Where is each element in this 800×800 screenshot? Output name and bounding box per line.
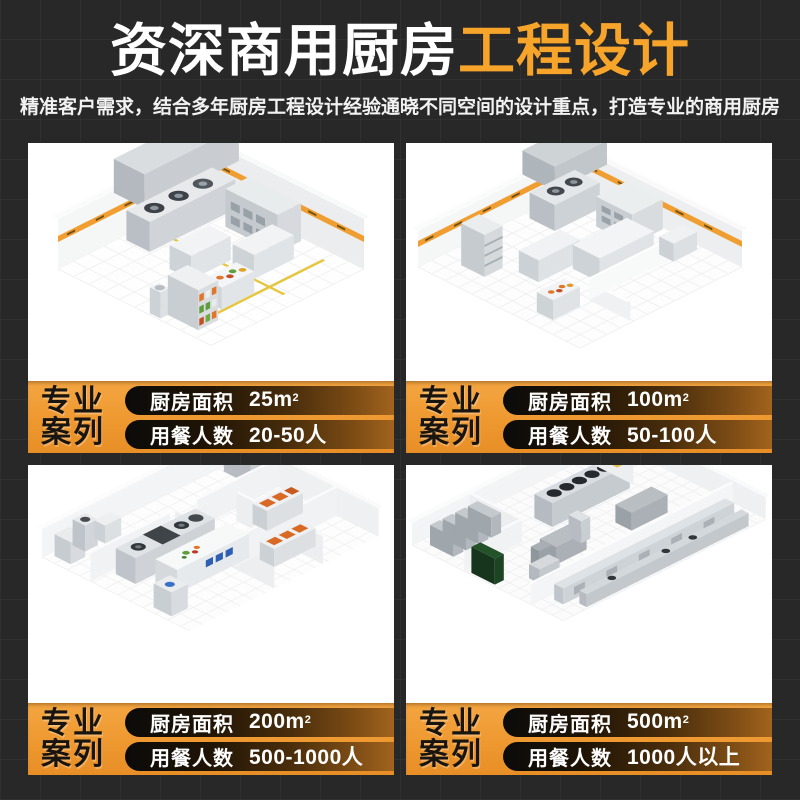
professional-case-badge: 专业 案列 (406, 386, 503, 448)
professional-case-badge: 专业 案列 (28, 708, 125, 770)
kitchen-render-500sqm (406, 465, 772, 703)
case-info-bar: 专业 案列 厨房面积 25m2 用餐人数 20-50人 (28, 381, 394, 453)
case-card-100sqm: 专业 案列 厨房面积 100m2 用餐人数 50-100人 (406, 143, 772, 453)
kitchen-isometric-illustration-500sqm (406, 465, 772, 703)
kitchen-area-sup: 2 (305, 714, 311, 726)
diners-count-pill: 用餐人数 1000人以上 (503, 742, 772, 771)
case-card-25sqm: 专业 案列 厨房面积 25m2 用餐人数 20-50人 (28, 143, 394, 453)
badge-line1: 专业 (41, 708, 125, 739)
kitchen-render-25sqm (28, 143, 394, 381)
kitchen-isometric-illustration-100sqm (406, 143, 772, 381)
kitchen-area-value: 500m (627, 710, 683, 734)
professional-case-badge: 专业 案列 (28, 386, 125, 448)
diners-count-pill: 用餐人数 50-100人 (503, 420, 772, 449)
diners-count-value: 20-50人 (249, 419, 327, 449)
badge-line1: 专业 (419, 708, 503, 739)
diners-count-pill: 用餐人数 20-50人 (125, 420, 394, 449)
case-card-200sqm: 专业 案列 厨房面积 200m2 用餐人数 500-1000人 (28, 465, 394, 775)
kitchen-area-pill: 厨房面积 100m2 (503, 386, 772, 415)
spec-pills: 厨房面积 25m2 用餐人数 20-50人 (125, 383, 394, 451)
kitchen-area-label: 厨房面积 (528, 386, 612, 415)
kitchen-area-value: 25m (249, 388, 293, 412)
kitchen-area-value: 100m (627, 388, 683, 412)
kitchen-isometric-illustration-25sqm (28, 143, 394, 381)
kitchen-area-label: 厨房面积 (528, 708, 612, 737)
kitchen-area-pill: 厨房面积 25m2 (125, 386, 394, 415)
badge-line2: 案列 (41, 739, 125, 770)
diners-count-label: 用餐人数 (150, 742, 234, 771)
badge-line2: 案列 (419, 739, 503, 770)
diners-count-label: 用餐人数 (528, 420, 612, 449)
case-grid: 专业 案列 厨房面积 25m2 用餐人数 20-50人 专业 案列 (28, 143, 772, 775)
kitchen-area-pill: 厨房面积 500m2 (503, 708, 772, 737)
kitchen-area-sup: 2 (293, 392, 299, 404)
diners-count-label: 用餐人数 (528, 742, 612, 771)
header: 资深商用厨房工程设计 精准客户需求，结合多年厨房工程设计经验通晓不同空间的设计重… (0, 0, 800, 143)
page-subtitle: 精准客户需求，结合多年厨房工程设计经验通晓不同空间的设计重点，打造专业的商用厨房 (0, 92, 800, 119)
kitchen-render-200sqm (28, 465, 394, 703)
diners-count-label: 用餐人数 (150, 420, 234, 449)
diners-count-value: 500-1000人 (249, 741, 363, 771)
kitchen-isometric-illustration-200sqm (28, 465, 394, 703)
spec-pills: 厨房面积 200m2 用餐人数 500-1000人 (125, 705, 394, 773)
case-card-500sqm: 专业 案列 厨房面积 500m2 用餐人数 1000人以上 (406, 465, 772, 775)
spec-pills: 厨房面积 100m2 用餐人数 50-100人 (503, 383, 772, 451)
kitchen-area-sup: 2 (683, 392, 689, 404)
badge-line2: 案列 (419, 417, 503, 448)
kitchen-area-label: 厨房面积 (150, 708, 234, 737)
badge-line1: 专业 (41, 386, 125, 417)
badge-line2: 案列 (41, 417, 125, 448)
case-info-bar: 专业 案列 厨房面积 500m2 用餐人数 1000人以上 (406, 703, 772, 775)
kitchen-area-value: 200m (249, 710, 305, 734)
kitchen-render-100sqm (406, 143, 772, 381)
diners-count-value: 1000人以上 (627, 741, 740, 771)
case-info-bar: 专业 案列 厨房面积 200m2 用餐人数 500-1000人 (28, 703, 394, 775)
kitchen-area-pill: 厨房面积 200m2 (125, 708, 394, 737)
diners-count-value: 50-100人 (627, 419, 717, 449)
badge-line1: 专业 (419, 386, 503, 417)
kitchen-area-label: 厨房面积 (150, 386, 234, 415)
page-title: 资深商用厨房工程设计 (0, 22, 800, 82)
spec-pills: 厨房面积 500m2 用餐人数 1000人以上 (503, 705, 772, 773)
professional-case-badge: 专业 案列 (406, 708, 503, 770)
title-orange-part: 工程设计 (458, 19, 690, 83)
title-white-part: 资深商用厨房 (110, 19, 458, 83)
case-info-bar: 专业 案列 厨房面积 100m2 用餐人数 50-100人 (406, 381, 772, 453)
diners-count-pill: 用餐人数 500-1000人 (125, 742, 394, 771)
kitchen-area-sup: 2 (683, 714, 689, 726)
